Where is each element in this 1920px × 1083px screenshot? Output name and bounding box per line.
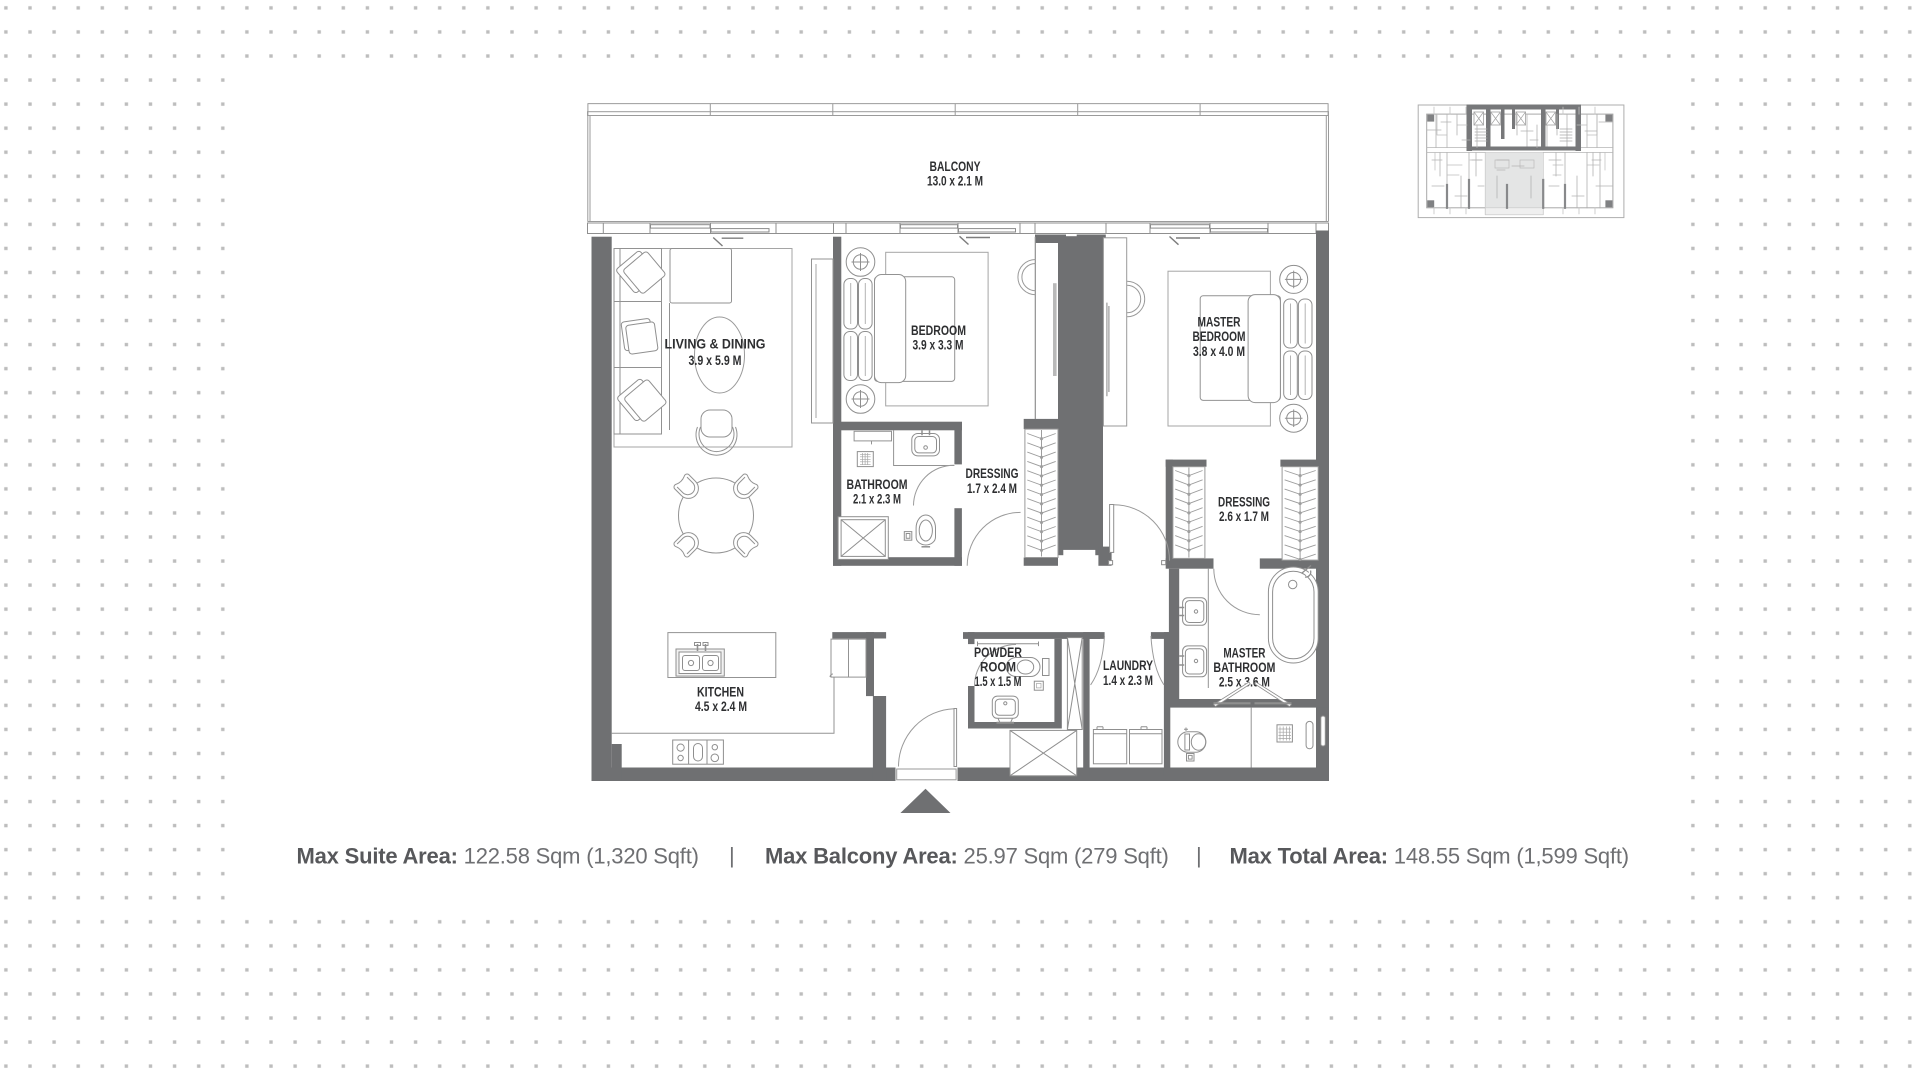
svg-text:2.1 x 2.3 M: 2.1 x 2.3 M	[853, 492, 901, 507]
svg-text:DRESSING: DRESSING	[966, 466, 1019, 481]
svg-text:ROOM: ROOM	[980, 660, 1016, 675]
svg-text:13.0 x 2.1 M: 13.0 x 2.1 M	[927, 174, 983, 189]
svg-text:BEDROOM: BEDROOM	[911, 323, 966, 338]
svg-text:1.4 x 2.3 M: 1.4 x 2.3 M	[1103, 673, 1153, 688]
svg-text:BALCONY: BALCONY	[930, 159, 981, 174]
svg-text:LAUNDRY: LAUNDRY	[1103, 658, 1153, 673]
svg-text:1.5 x 1.5 M: 1.5 x 1.5 M	[975, 674, 1022, 689]
svg-text:Max Total Area: 148.55 Sqm (1,: Max Total Area: 148.55 Sqm (1,599 Sqft)	[1230, 844, 1629, 869]
svg-text:POWDER: POWDER	[974, 645, 1022, 660]
svg-text:3.9 x 3.3 M: 3.9 x 3.3 M	[913, 338, 964, 353]
svg-text:4.5 x 2.4 M: 4.5 x 2.4 M	[695, 699, 747, 714]
svg-text:3.9 x 5.9 M: 3.9 x 5.9 M	[689, 353, 742, 368]
svg-text:1.7 x 2.4 M: 1.7 x 2.4 M	[967, 481, 1017, 496]
svg-text:|: |	[729, 843, 735, 868]
svg-text:MASTER: MASTER	[1223, 646, 1265, 661]
svg-text:LIVING & DINING: LIVING & DINING	[665, 337, 766, 352]
svg-text:|: |	[1196, 843, 1202, 868]
svg-text:DRESSING: DRESSING	[1218, 495, 1270, 510]
svg-text:BATHROOM: BATHROOM	[847, 477, 908, 492]
svg-text:KITCHEN: KITCHEN	[697, 685, 744, 700]
svg-text:Max Balcony Area: 25.97 Sqm (2: Max Balcony Area: 25.97 Sqm (279 Sqft)	[765, 844, 1169, 869]
svg-text:BATHROOM: BATHROOM	[1213, 660, 1275, 675]
svg-text:3.8 x 4.0 M: 3.8 x 4.0 M	[1193, 344, 1245, 359]
svg-text:MASTER: MASTER	[1198, 315, 1241, 330]
svg-text:2.6 x 1.7 M: 2.6 x 1.7 M	[1219, 509, 1269, 524]
svg-text:BEDROOM: BEDROOM	[1193, 329, 1246, 344]
svg-text:Max Suite Area: 122.58 Sqm (1,: Max Suite Area: 122.58 Sqm (1,320 Sqft)	[297, 844, 699, 869]
